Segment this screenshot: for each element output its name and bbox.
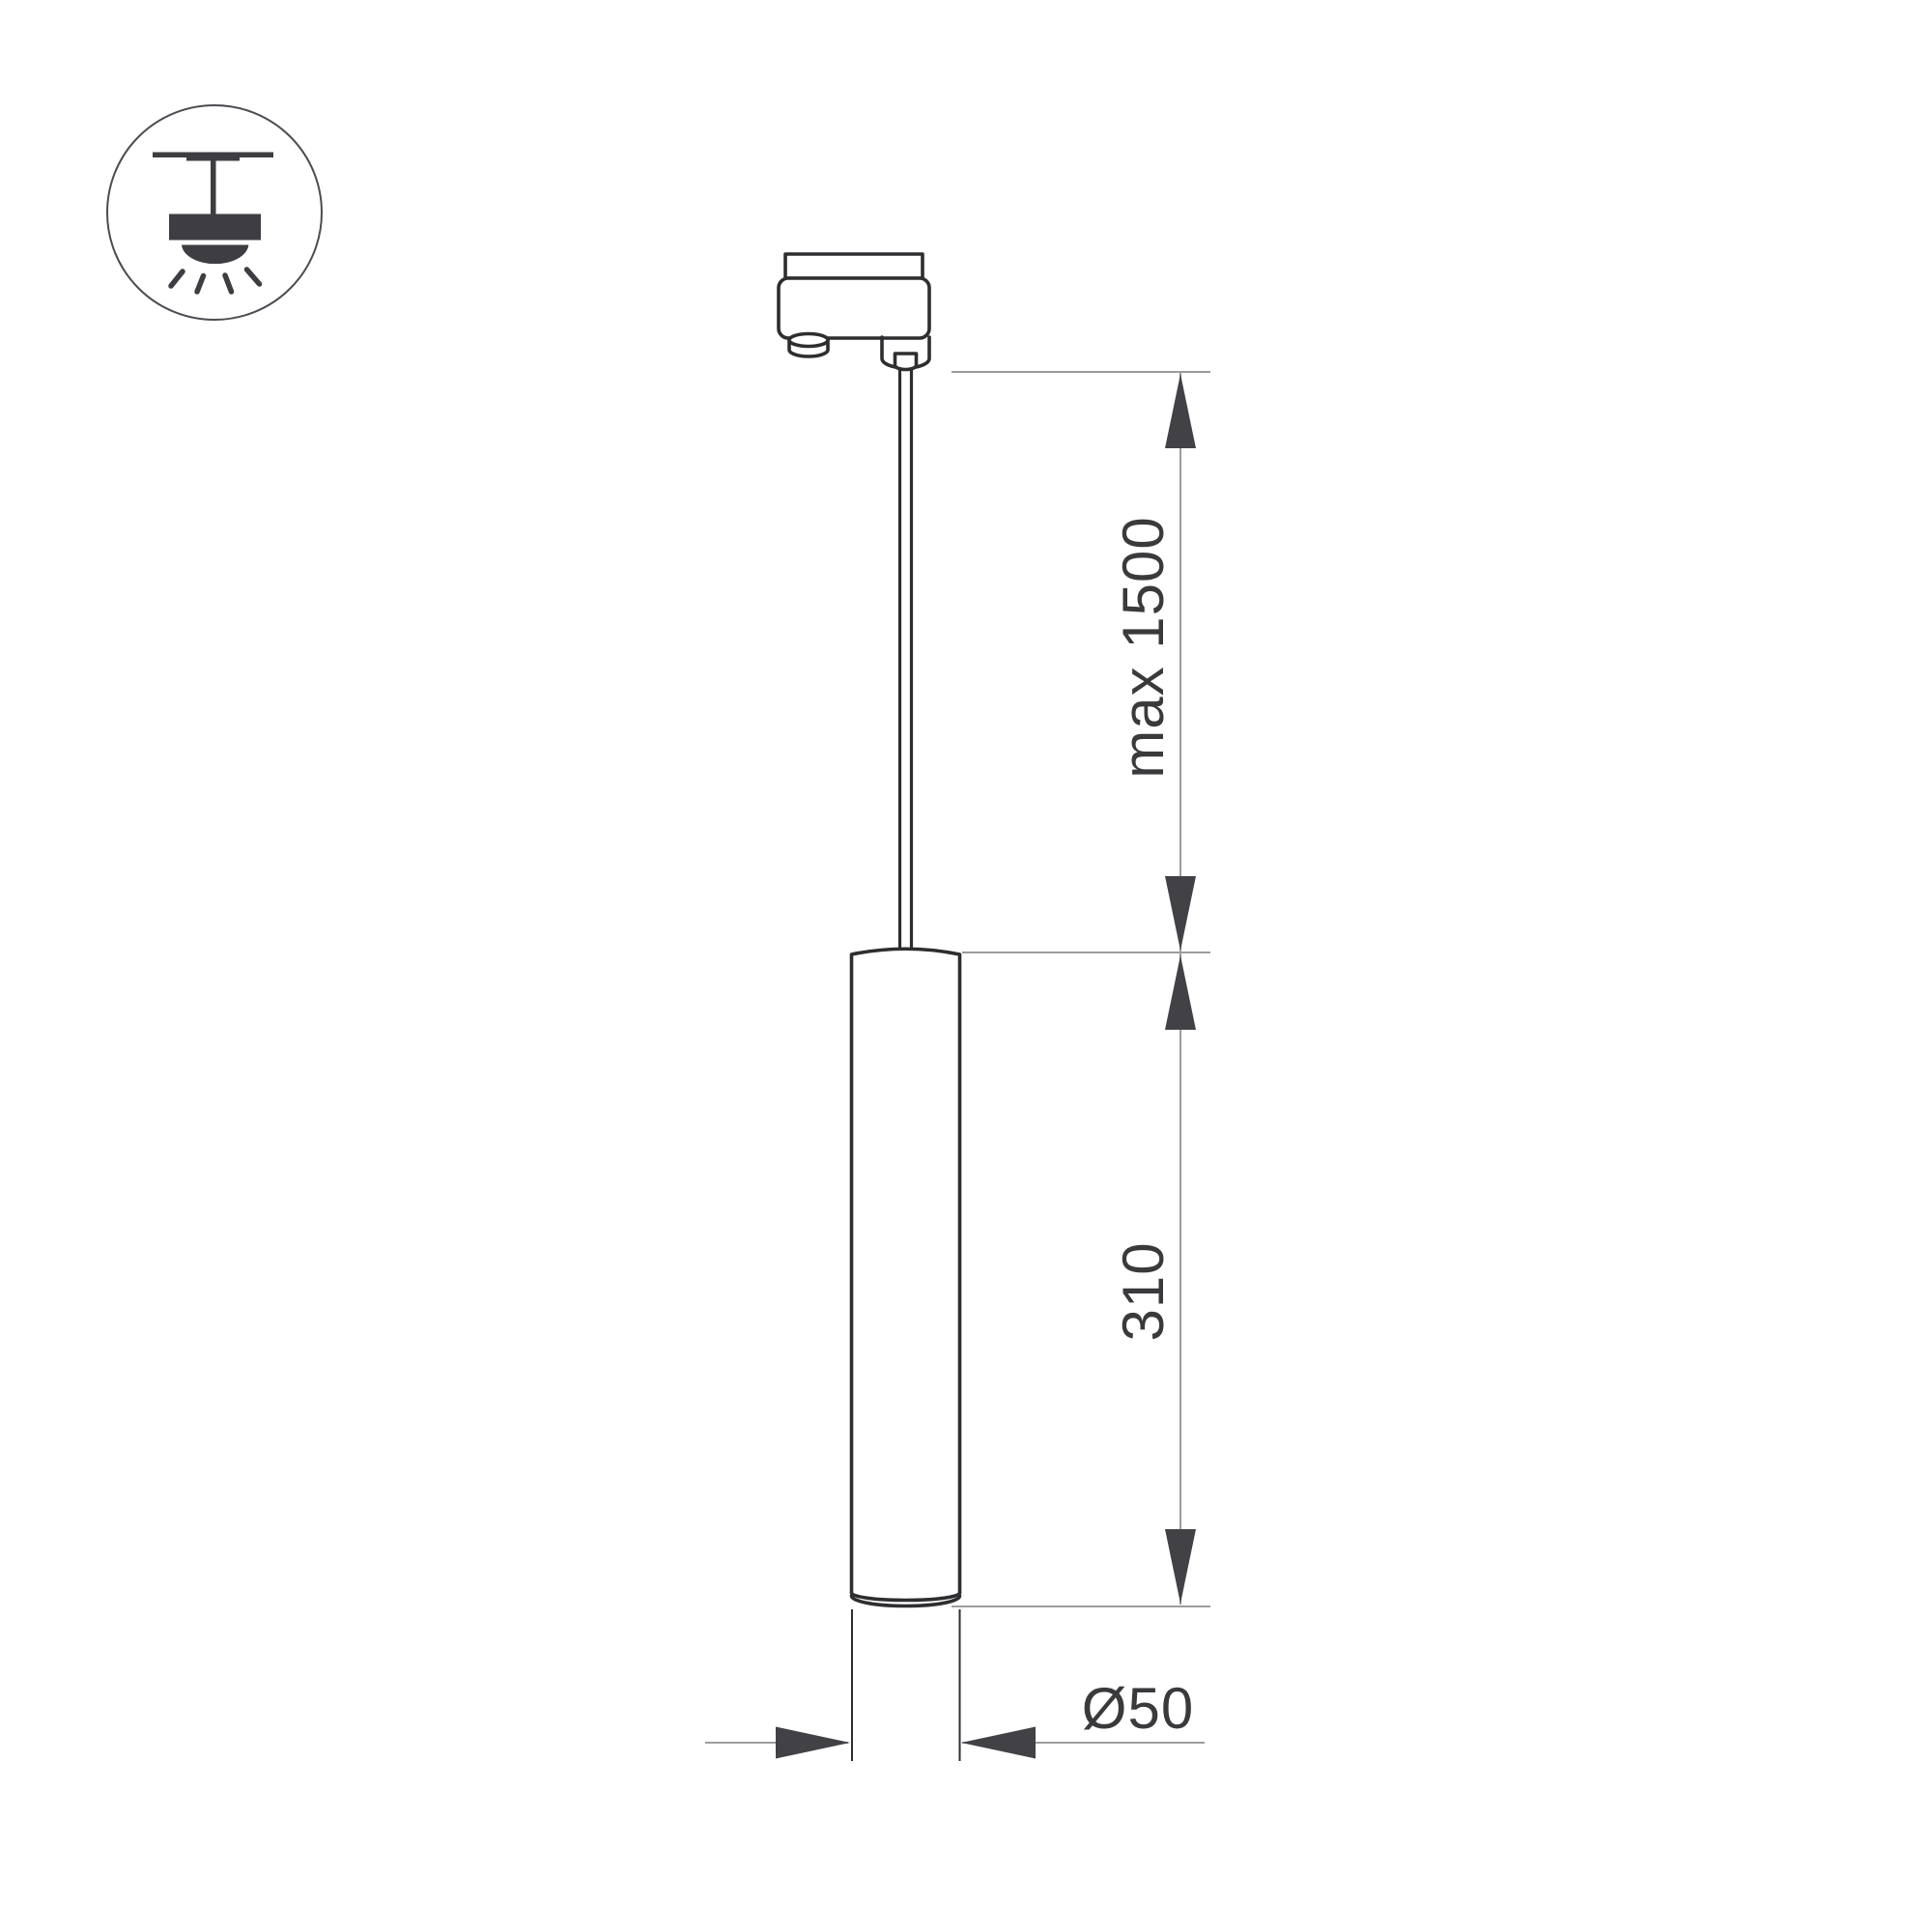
icon-light-rays <box>171 270 260 292</box>
icon-stem <box>211 160 216 214</box>
dimension-label-max-1500: max 1500 <box>1111 516 1176 779</box>
icon-lamp-dome <box>182 245 248 265</box>
dimension-label-diameter-50: Ø50 <box>1082 1676 1194 1741</box>
mount-type-icon <box>107 105 322 320</box>
technical-drawing-page: max 1500 310 Ø50 <box>0 0 1932 1932</box>
lamp-tube-rim-inner <box>852 1593 960 1601</box>
lamp-tube <box>852 949 960 1605</box>
adapter-cord-grip <box>895 354 917 370</box>
arrowhead-right-icon <box>776 1727 850 1759</box>
arrowhead-down-icon <box>1165 1529 1196 1604</box>
icon-track-bar <box>186 155 240 161</box>
pendant-lamp-technical-drawing: max 1500 310 Ø50 <box>0 0 1932 1932</box>
lamp-tube-body <box>852 949 960 1593</box>
adapter-body <box>779 278 929 338</box>
arrowhead-up-icon <box>1165 955 1196 1030</box>
arrowhead-up-icon <box>1165 374 1196 448</box>
adapter-track-connector <box>785 254 923 278</box>
dimension-diameter: Ø50 <box>705 1609 1205 1761</box>
arrowhead-down-icon <box>1165 876 1196 951</box>
dimension-suspension-length: max 1500 <box>952 372 1210 1605</box>
dimension-label-310: 310 <box>1111 1241 1176 1341</box>
dimension-body-height: 310 <box>952 955 1210 1606</box>
suspension-cord <box>900 370 912 951</box>
track-adapter <box>779 254 929 370</box>
adapter-knob <box>789 334 828 357</box>
arrowhead-left-icon <box>961 1727 1036 1759</box>
icon-lamp-body <box>169 214 261 241</box>
